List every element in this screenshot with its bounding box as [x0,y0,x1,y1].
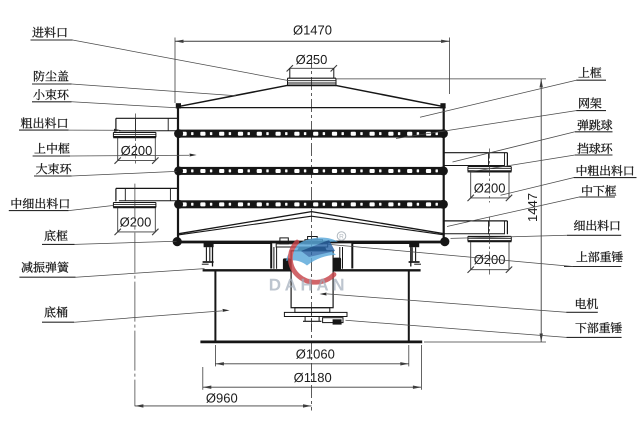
svg-text:Ø1180: Ø1180 [294,370,332,385]
svg-text:Ø1470: Ø1470 [293,23,332,38]
svg-text:Ø1060: Ø1060 [296,347,335,362]
svg-text:Ø200: Ø200 [120,215,152,230]
svg-text:DAHAN: DAHAN [269,276,348,295]
svg-text:R: R [339,234,344,241]
svg-text:Ø960: Ø960 [206,390,238,405]
svg-text:Ø250: Ø250 [296,52,328,67]
